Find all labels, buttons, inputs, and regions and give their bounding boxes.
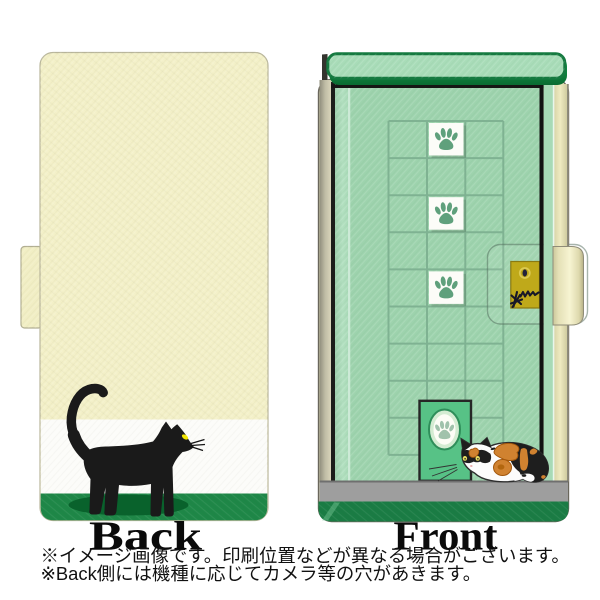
svg-text:※Back側には機種に応じてカメラ等の穴があきます。: ※Back側には機種に応じてカメラ等の穴があきます。 [41,563,482,584]
